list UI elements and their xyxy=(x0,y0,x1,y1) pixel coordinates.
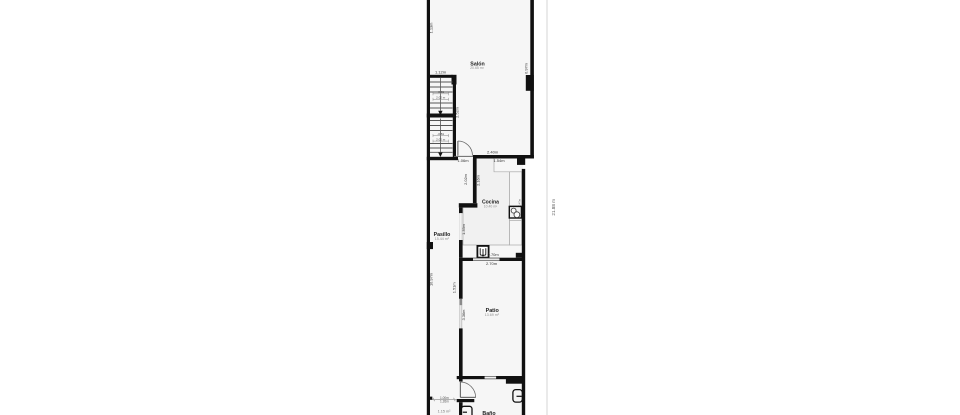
svg-text:1.15 m²: 1.15 m² xyxy=(438,409,452,413)
svg-text:3.36m: 3.36m xyxy=(461,310,466,321)
svg-text:0.47m: 0.47m xyxy=(517,199,521,206)
svg-text:2.02 m: 2.02 m xyxy=(436,138,446,142)
svg-text:Baño: Baño xyxy=(482,411,496,415)
svg-text:10.40 m²: 10.40 m² xyxy=(484,204,498,208)
svg-text:2.70m: 2.70m xyxy=(486,261,498,266)
svg-text:15.44 m²: 15.44 m² xyxy=(435,237,450,241)
svg-text:2.40m: 2.40m xyxy=(487,150,499,155)
svg-text:10.97m: 10.97m xyxy=(428,273,433,286)
svg-text:0.97m: 0.97m xyxy=(523,63,528,74)
svg-text:13.69 m²: 13.69 m² xyxy=(485,313,500,317)
svg-text:1.26m: 1.26m xyxy=(440,399,449,403)
svg-text:1.12m: 1.12m xyxy=(435,70,447,75)
svg-text:1.06m: 1.06m xyxy=(457,158,469,163)
svg-text:2.02 m: 2.02 m xyxy=(436,96,446,100)
svg-text:1.13m: 1.13m xyxy=(428,23,433,34)
svg-text:20.65 m²: 20.65 m² xyxy=(470,66,485,70)
svg-text:1.51m: 1.51m xyxy=(452,282,457,293)
svg-text:0.70m: 0.70m xyxy=(488,252,500,257)
svg-text:1.54m: 1.54m xyxy=(493,158,505,163)
svg-text:2.16m: 2.16m xyxy=(476,175,481,186)
svg-text:-0.81: -0.81 xyxy=(437,132,444,136)
svg-text:2.02m: 2.02m xyxy=(463,174,468,185)
svg-text:21.88 m: 21.88 m xyxy=(551,199,556,216)
svg-text:1.35m: 1.35m xyxy=(461,224,466,235)
svg-text:-0.81: -0.81 xyxy=(437,90,444,94)
